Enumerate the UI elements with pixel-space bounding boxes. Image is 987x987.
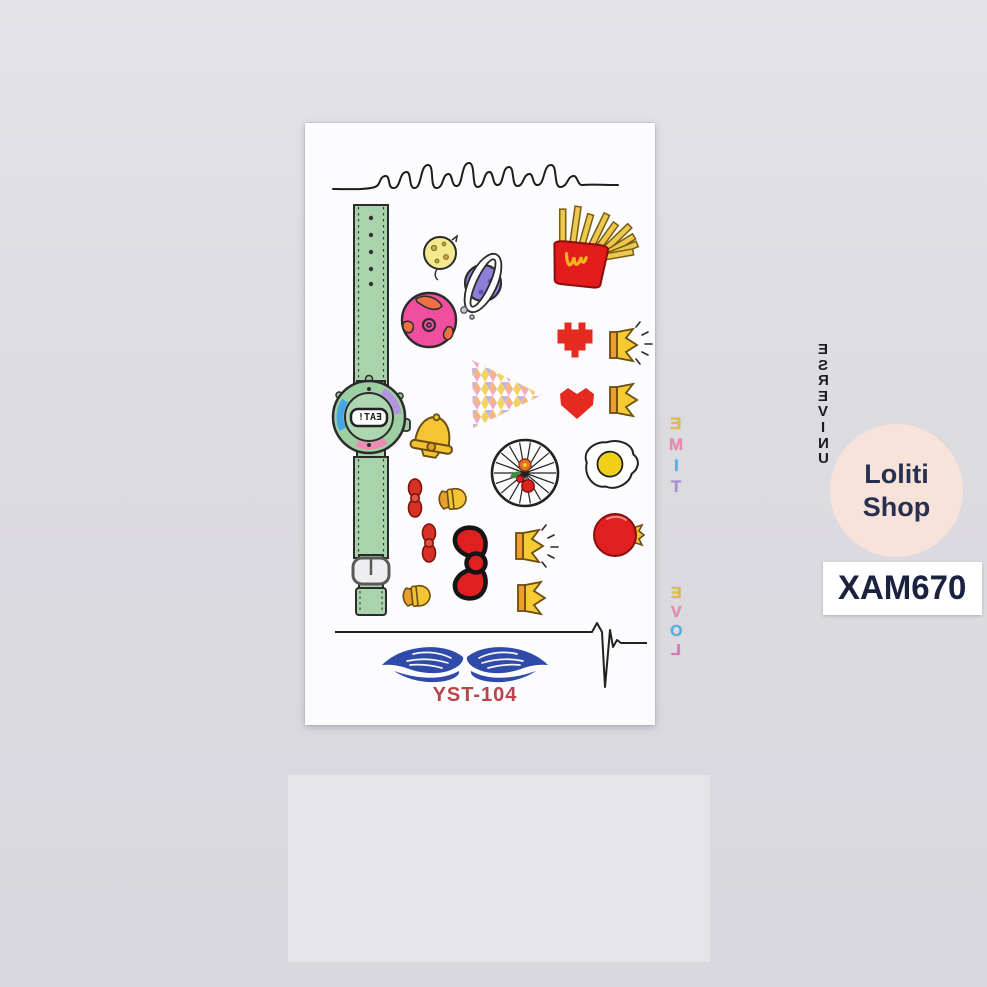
bell-icon bbox=[409, 411, 458, 461]
saturn-planet-icon bbox=[457, 249, 509, 320]
watch-time-text: EMIT bbox=[660, 413, 692, 497]
red-mini-bow-icon bbox=[409, 479, 422, 517]
watch-display-text: EAT! bbox=[351, 409, 389, 426]
angular-heart-icon bbox=[560, 388, 594, 419]
shop-name-line1: Loliti bbox=[864, 458, 928, 491]
yellow-mini-bow-icon bbox=[438, 488, 467, 511]
mosaic-triangle-icon bbox=[472, 360, 542, 428]
tribal-wings-icon bbox=[382, 647, 548, 682]
shop-badge: Loliti Shop bbox=[830, 424, 963, 557]
french-fries-icon bbox=[550, 204, 641, 291]
universe-mirrored-text: ESREVINU bbox=[808, 342, 838, 467]
mirrored-cursive-script bbox=[333, 163, 618, 189]
sku-code: XAM670 bbox=[838, 569, 966, 608]
pomegranate-icon bbox=[594, 514, 644, 556]
sku-tag: XAM670 bbox=[823, 562, 982, 615]
table-surface-strip bbox=[288, 775, 710, 962]
sheet-code-label: YST-104 bbox=[405, 684, 545, 707]
crown-icon bbox=[516, 525, 558, 567]
red-mini-bow-icon bbox=[423, 524, 436, 562]
product-photo: ESREVINU EMIT EVOL EAT! YST-104 Loliti S… bbox=[0, 0, 987, 987]
pixel-heart-icon bbox=[558, 323, 593, 358]
cherry-wheel-icon bbox=[492, 440, 558, 506]
moon-icon bbox=[424, 236, 457, 280]
hello-kitty-bow-icon bbox=[455, 528, 486, 599]
pink-planet-icon bbox=[402, 293, 456, 347]
fried-egg-icon bbox=[584, 439, 639, 489]
crown-icon bbox=[610, 384, 637, 416]
shop-name-line2: Shop bbox=[863, 491, 931, 524]
watch-love-text: EVOL bbox=[660, 584, 692, 660]
crown-icon bbox=[610, 322, 652, 364]
yellow-mini-bow-icon bbox=[402, 585, 431, 608]
crown-icon bbox=[518, 582, 545, 614]
